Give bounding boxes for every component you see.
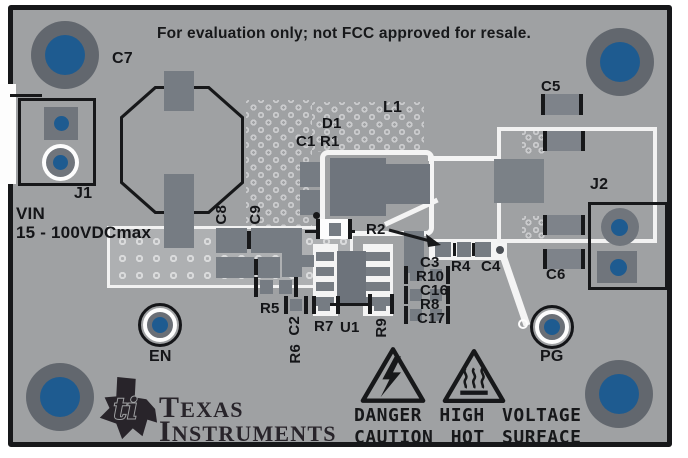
u1-pin: [316, 267, 334, 276]
u1-body: [337, 251, 366, 305]
l1-body: [330, 158, 386, 216]
refdes-c9: C9: [248, 205, 263, 225]
refdes-c2: C2: [287, 316, 302, 336]
vin-label: VIN: [16, 205, 45, 222]
pad: [300, 255, 314, 267]
en-label: EN: [149, 349, 172, 365]
trace: [428, 156, 498, 161]
refdes-u1: U1: [340, 320, 360, 335]
refdes-j1: J1: [74, 186, 92, 202]
silkscreen-tick: [247, 231, 251, 249]
l1-body: [386, 164, 430, 204]
refdes-c8: C8: [214, 205, 229, 225]
u1-pin: [316, 282, 334, 291]
refdes-c7: C7: [112, 51, 133, 67]
c7-pad: [164, 174, 194, 248]
refdes-r5: R5: [260, 301, 280, 316]
c4-body: [475, 242, 491, 257]
c8-body: [216, 228, 247, 253]
refdes-d1: D1: [322, 116, 342, 131]
j1-edge-tab: [0, 84, 16, 184]
silkscreen-tick: [453, 243, 456, 256]
cap-body: [258, 257, 280, 278]
danger-high-voltage-text: DANGER HIGH VOLTAGE: [354, 407, 581, 425]
u1-pin: [366, 252, 390, 261]
j1-hole: [53, 155, 68, 170]
high-voltage-icon: [356, 344, 430, 406]
evaluation-disclaimer: For evaluation only; not FCC approved fo…: [0, 25, 688, 43]
silkscreen-tick: [254, 259, 258, 275]
silkscreen-line: [10, 94, 42, 97]
pad: [494, 159, 544, 203]
ti-texas-logo-icon: ti: [92, 372, 160, 446]
pcb-photo: ti For evaluation only; not FCC approved…: [0, 0, 688, 458]
r6-body: [282, 255, 296, 267]
j1-hole: [54, 116, 69, 131]
via-ring: [518, 319, 528, 329]
pad: [374, 298, 386, 311]
via-dot: [496, 246, 504, 254]
refdes-r2: R2: [366, 222, 386, 237]
mounting-hole: [26, 363, 94, 431]
vin-rating: 15 - 100VDCmax: [16, 224, 151, 241]
c5-body: [541, 94, 583, 115]
j2-hole: [610, 259, 627, 276]
pg-test-point: [530, 305, 574, 349]
c9-body: [251, 228, 282, 253]
u1-pin: [366, 282, 390, 291]
pad: [260, 280, 273, 294]
refdes-r9: R9: [374, 318, 389, 338]
refdes-c6: C6: [546, 267, 566, 282]
refdes-c17: C17: [417, 311, 445, 326]
refdes-c4: C4: [481, 259, 501, 274]
u1-pin: [316, 252, 334, 261]
cap-body: [216, 257, 254, 278]
pg-label: PG: [540, 349, 564, 365]
refdes-r6: R6: [288, 344, 303, 364]
r2-pointer-arrow: [386, 226, 444, 252]
refdes-r7: R7: [314, 319, 334, 334]
j2-hole: [611, 219, 628, 236]
mounting-hole: [585, 360, 653, 428]
pad: [282, 228, 302, 277]
cap-body: [543, 131, 585, 151]
pad: [290, 299, 302, 311]
cap-body: [543, 215, 585, 235]
u1-pin: [366, 267, 390, 276]
refdes-c1-r1: C1 R1: [296, 134, 340, 149]
pin1-dot: [313, 212, 320, 219]
r4-body: [457, 242, 471, 257]
silkscreen-tick: [472, 243, 475, 256]
c7-pad: [164, 71, 194, 111]
pad: [318, 299, 330, 311]
en-test-point: [138, 303, 182, 347]
refdes-l1: L1: [383, 100, 402, 116]
caution-hot-surface-text: CAUTION HOT SURFACE: [354, 429, 581, 447]
refdes-c5: C5: [541, 79, 561, 94]
brand-instruments: Instruments: [159, 417, 337, 447]
pad: [279, 280, 292, 294]
hot-surface-icon: [438, 346, 510, 406]
refdes-r4: R4: [451, 259, 471, 274]
svg-text:ti: ti: [113, 392, 138, 426]
pad: [329, 223, 341, 236]
refdes-j2: J2: [590, 177, 608, 193]
